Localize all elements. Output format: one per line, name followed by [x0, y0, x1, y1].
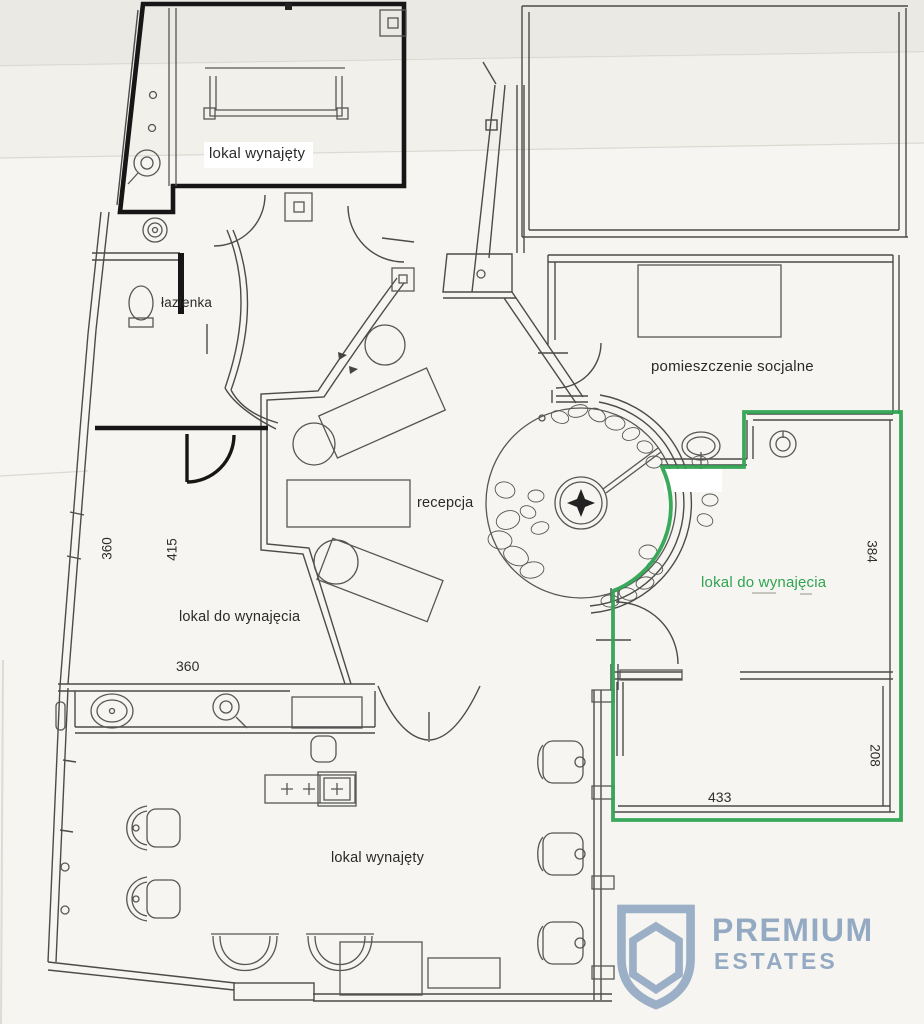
label-bathroom: łazienka [161, 296, 212, 311]
dimension-left-width: 360 [176, 658, 199, 674]
label-unit-rented-bottom: lokal wynajęty [331, 851, 424, 867]
brand-name-estates: ESTATES [714, 948, 838, 975]
scanned-floor-plan: lokal wynajęty łazienka pomieszczenie so… [0, 0, 924, 1024]
floor-plan-drawing [0, 0, 924, 1024]
label-reception: recepcja [417, 496, 473, 512]
dimension-right-width: 433 [708, 789, 731, 805]
wash-stations-left [127, 806, 180, 921]
dimension-right-depth-lower: 208 [868, 734, 883, 778]
dimension-left-wall: 360 [100, 527, 115, 571]
styling-chairs-right [538, 741, 585, 964]
dimension-right-depth-upper: 384 [865, 530, 880, 574]
premium-estates-watermark: PREMIUM ESTATES [600, 890, 924, 1024]
dimension-left-depth: 415 [165, 528, 180, 572]
label-social-room: pomieszczenie socjalne [651, 359, 814, 376]
shield-icon [608, 896, 704, 1014]
label-unit-for-rent-left: lokal do wynajęcia [179, 610, 300, 626]
label-unit-rented-top: lokal wynajęty [204, 142, 313, 168]
label-unit-for-rent-right: lokal do wynajęcia [701, 575, 826, 592]
brand-name-premium: PREMIUM [712, 912, 874, 949]
